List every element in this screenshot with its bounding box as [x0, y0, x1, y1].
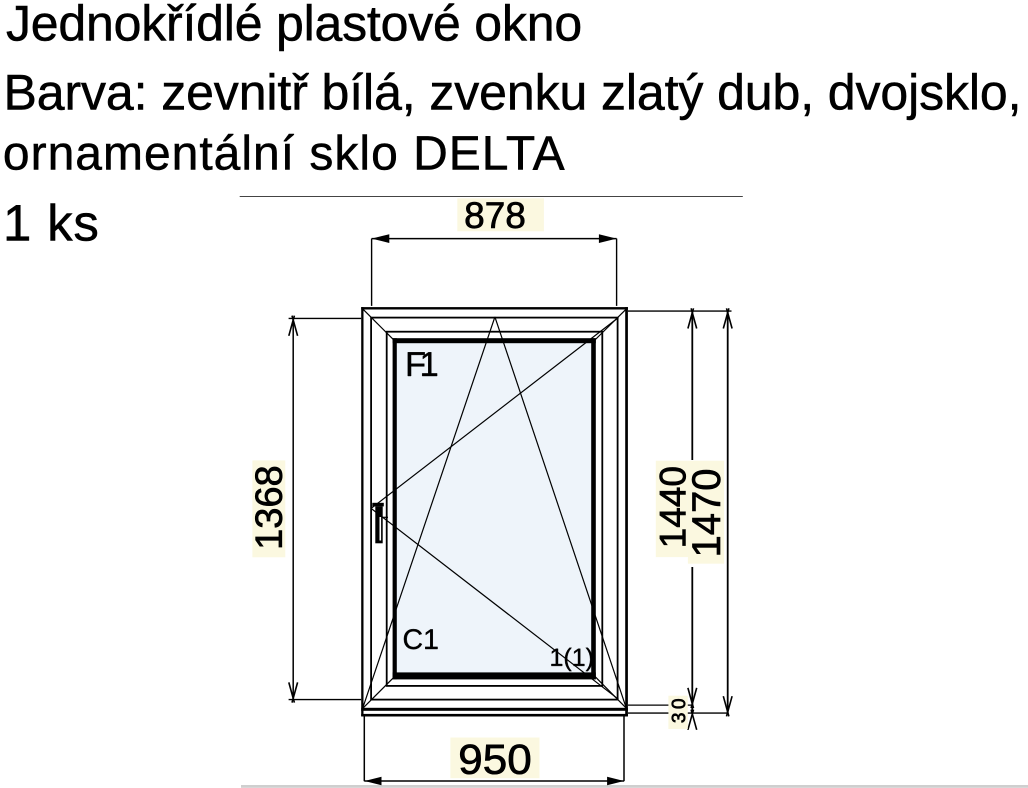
svg-text:Barva: zevnitř bílá, zvenku zl: Barva: zevnitř bílá, zvenku zlatý dub, d…: [4, 65, 1022, 121]
svg-text:1 ks: 1 ks: [3, 194, 100, 251]
svg-text:ornamentální sklo DELTA: ornamentální sklo DELTA: [3, 127, 566, 180]
svg-text:Jednokřídlé plastové okno: Jednokřídlé plastové okno: [6, 0, 582, 51]
